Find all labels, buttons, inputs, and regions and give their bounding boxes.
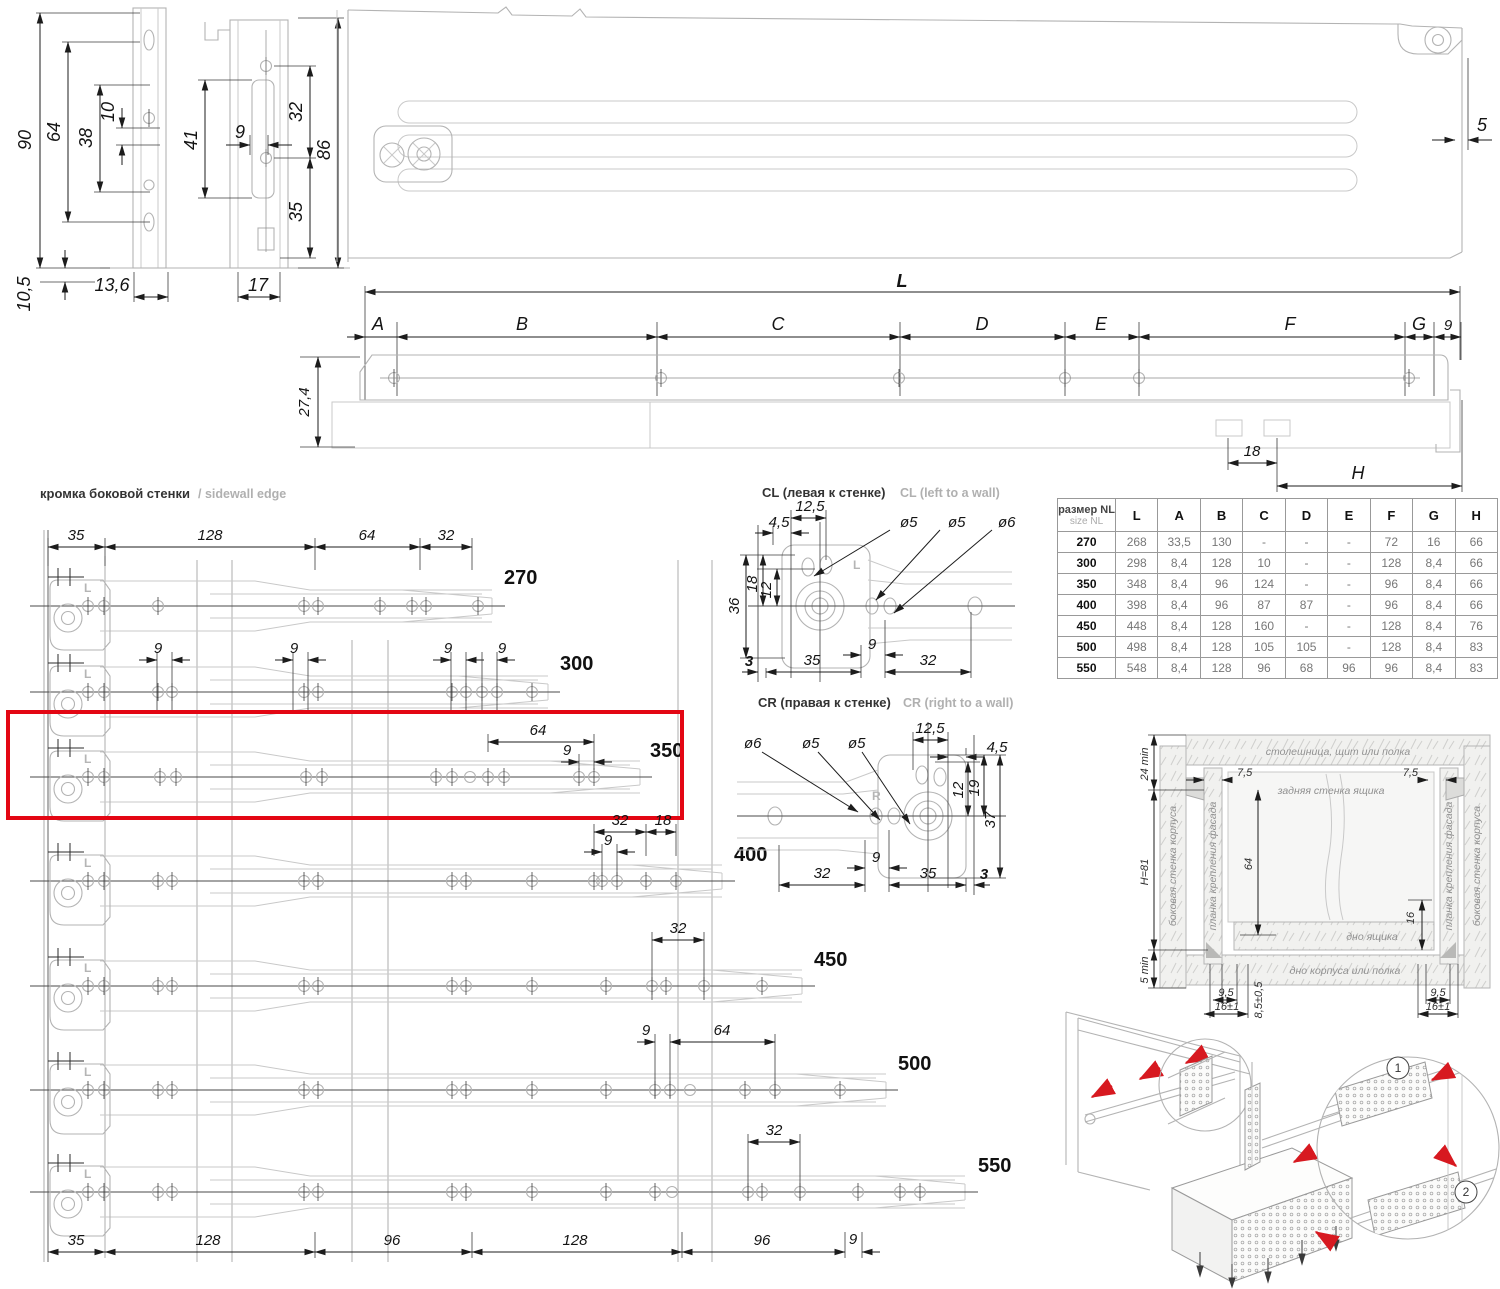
dim-9d: 9 [498,640,507,657]
dim-27-4: 27,4 [296,387,313,417]
cell: - [1328,616,1370,637]
dim-9-5-right: 9,5 [1430,987,1446,999]
dim-64: 64 [44,122,64,142]
dim-64: 64 [714,1022,731,1039]
size-label-270: 270 [504,567,537,589]
cell-size: 300 [1058,553,1116,574]
dim-64: 64 [530,722,547,739]
cell: 16 [1413,532,1455,553]
dim-8-5: 8,5±0,5 [1253,981,1265,1019]
slide-row-500: L 500 9 64 [30,1022,931,1134]
dim-18: 18 [1244,443,1261,460]
cell: 66 [1455,553,1498,574]
cell: 8,4 [1413,574,1455,595]
row-400-dims: 32 18 9 [584,812,676,876]
label-strip-left: планка крепления фасада [1207,801,1219,930]
cell: 8,4 [1158,616,1200,637]
bot-dim-96a: 96 [384,1232,401,1249]
cr-dim-19: 19 [966,779,983,796]
rail-mark: L [84,581,91,595]
cl-dim-3: 3 [745,653,754,670]
assembly-illustration: 1 2 [1066,1012,1499,1287]
dim-9: 9 [235,122,245,142]
seg-D: D [976,314,989,334]
row-500-dims: 9 64 [637,1022,775,1098]
technical-drawing-sheet: 90 64 38 10 41 9 32 35 86 10,5 13,6 17 5 [0,0,1500,1289]
seg-9: 9 [1444,317,1453,334]
cell: 96 [1200,574,1242,595]
cr-dim-3: 3 [980,866,989,883]
col-E: E [1328,499,1370,532]
cell: 96 [1370,595,1412,616]
cell: - [1285,532,1327,553]
cell: - [1328,595,1370,616]
table-row: 270 26833,5130---721666 [1058,532,1498,553]
cell: 8,4 [1413,637,1455,658]
bot-dim-96b: 96 [754,1232,771,1249]
bot-dim-9: 9 [849,1231,858,1248]
cell: 398 [1116,595,1158,616]
cell: - [1328,574,1370,595]
table-row: 350 3488,496124--968,466 [1058,574,1498,595]
dim-32: 32 [670,920,687,937]
table-row: 300 2988,412810--1288,466 [1058,553,1498,574]
size-spec-table: размер NL size NL L A B C D E F G H 270 … [1057,498,1498,679]
cell: 8,4 [1158,658,1200,679]
dim-7-5-right: 7,5 [1403,767,1419,779]
cell: 448 [1116,616,1158,637]
cell: 128 [1200,616,1242,637]
dim-24min: 24 min [1139,747,1151,781]
dim-L: L [897,271,908,291]
cell: - [1328,532,1370,553]
sidewall-bottom-dims: 35 128 96 128 96 9 [48,1231,880,1258]
cell: 96 [1328,658,1370,679]
dim-18: 18 [655,812,672,829]
col-F: F [1370,499,1412,532]
cell: 128 [1200,553,1242,574]
sidewall-section: кромка боковой стенки / sidewall edge 35… [8,486,1011,1262]
dim-10-5: 10,5 [14,276,34,312]
dim-32: 32 [766,1122,783,1139]
cell: 8,4 [1413,553,1455,574]
dim-13-6: 13,6 [94,275,130,295]
cell: 130 [1200,532,1242,553]
dim-9a: 9 [154,640,163,657]
cl-dim-12-5: 12,5 [795,498,825,515]
rail-mark: L [84,1167,91,1181]
drawer-side-panel: 5 [337,7,1492,262]
col-C: C [1243,499,1285,532]
dim-5min: 5 min [1139,957,1151,984]
slide-row-400: L 400 32 18 9 [30,812,767,925]
dim-9-5-left: 9,5 [1218,987,1234,999]
top-dim-32: 32 [438,527,455,544]
dim-64: 64 [1243,858,1255,870]
cr-dia5a: ø5 [802,735,820,752]
table-row: 500 4988,4128105105-1288,483 [1058,637,1498,658]
cr-dim-4-5: 4,5 [987,739,1009,756]
cr-title-en: CR (right to a wall) [903,696,1013,710]
cl-dim-36: 36 [726,597,743,614]
cell: 66 [1455,595,1498,616]
label-strip-right: планка крепления фасада [1443,801,1455,930]
dim-7-5-left: 7,5 [1237,767,1253,779]
table-header-size: размер NL size NL [1058,499,1116,532]
size-label-350: 350 [650,740,683,762]
cell: - [1285,616,1327,637]
cell: 268 [1116,532,1158,553]
table-header-row: размер NL size NL L A B C D E F G H [1058,499,1498,532]
row-350-dims: 64 9 [488,722,612,770]
top-dim-35: 35 [68,527,85,544]
dim-5: 5 [1477,115,1488,135]
bot-dim-128b: 128 [562,1232,588,1249]
seg-G: G [1412,314,1426,334]
dim-9: 9 [604,832,613,849]
label-countertop: столешница, щит или полка [1266,746,1411,758]
col-G: G [1413,499,1455,532]
cell: 498 [1116,637,1158,658]
dim-32: 32 [286,102,306,122]
col-L: L [1116,499,1158,532]
cell: 128 [1200,658,1242,679]
cell: 87 [1285,595,1327,616]
cr-dia6: ø6 [744,735,762,752]
cell: 8,4 [1158,553,1200,574]
cl-dim-12: 12 [758,581,775,598]
dim-H81: H=81 [1139,859,1151,886]
cell-size: 550 [1058,658,1116,679]
bot-dim-128a: 128 [195,1232,221,1249]
cell: 548 [1116,658,1158,679]
sidewall-top-dims: 35 128 64 32 [48,527,472,570]
cell: 128 [1370,637,1412,658]
cell-size: 270 [1058,532,1116,553]
cross-section-dimensions: 90 64 38 10 41 9 32 35 86 10,5 13,6 17 [14,13,344,312]
size-label-550: 550 [978,1155,1011,1177]
cl-dim-32: 32 [920,652,937,669]
col-A: A [1158,499,1200,532]
cr-dim-35: 35 [920,865,937,882]
cl-dim-35: 35 [804,652,821,669]
cell: 105 [1243,637,1285,658]
rail-side-view: L A B C D E F G 9 27,4 18 H [296,271,1462,492]
cell: 76 [1455,616,1498,637]
cell-size: 400 [1058,595,1116,616]
seg-C: C [772,314,786,334]
cl-dim-4-5: 4,5 [769,514,791,531]
size-label-300: 300 [560,653,593,675]
cell: 8,4 [1413,658,1455,679]
label-drawer-bottom: дно ящика [1346,931,1398,943]
cell: 87 [1243,595,1285,616]
cell-size: 500 [1058,637,1116,658]
cl-dim-9: 9 [868,636,877,653]
rail-mark: L [84,961,91,975]
slide-row-550: L 550 32 [30,1122,1011,1236]
label-case-bottom: дно корпуса или полка [1290,965,1401,977]
table-row: 450 4488,4128160--1288,476 [1058,616,1498,637]
cl-dia6: ø6 [998,514,1016,531]
cell: 66 [1455,574,1498,595]
table-row: 550 5488,4128966896968,483 [1058,658,1498,679]
slide-row-300: L 300 9 9 9 9 [30,640,593,736]
cell: 68 [1285,658,1327,679]
dim-16-1-left: 16±1 [1215,1001,1239,1013]
slide-row-350: L 350 64 9 [30,722,683,821]
cell: 298 [1116,553,1158,574]
sidewall-title-ru: кромка боковой стенки [40,486,190,501]
cell: 8,4 [1413,616,1455,637]
cell: 160 [1243,616,1285,637]
cl-mark: L [853,558,860,572]
dim-35: 35 [286,201,306,222]
col-H: H [1455,499,1498,532]
cell-size: 450 [1058,616,1116,637]
seg-E: E [1095,314,1108,334]
seg-B: B [516,314,528,334]
cell: 348 [1116,574,1158,595]
cell: 124 [1243,574,1285,595]
cr-dia5b: ø5 [848,735,866,752]
dim-17: 17 [248,275,269,295]
cell: 8,4 [1158,595,1200,616]
size-label-500: 500 [898,1053,931,1075]
cell: 128 [1370,616,1412,637]
left-slide-profile [1186,778,1204,800]
dim-9c: 9 [444,640,453,657]
cl-detail: CL (левая к стенке) CL (left to a wall) … [726,485,1016,682]
cell: - [1328,637,1370,658]
label-back-wall: задняя стенка ящика [1277,785,1385,797]
cr-detail: CR (правая к стенке) CR (right to a wall… [737,695,1013,895]
cr-dim-12-5: 12,5 [915,720,945,737]
cr-title-ru: CR (правая к стенке) [758,695,891,710]
cell: 128 [1370,553,1412,574]
cell: 96 [1370,574,1412,595]
table-header-size-en: size NL [1058,516,1115,527]
dim-9: 9 [642,1022,651,1039]
dim-9: 9 [563,742,572,759]
cell: 8,4 [1158,574,1200,595]
cell: - [1285,553,1327,574]
cell: 96 [1243,658,1285,679]
table-header-size-ru: размер NL [1058,504,1115,516]
right-slide-profile [1446,778,1464,800]
dim-10: 10 [98,102,118,122]
dim-38: 38 [76,128,96,148]
cell: 83 [1455,637,1498,658]
cell: - [1285,574,1327,595]
dim-H: H [1352,463,1366,483]
cell: 72 [1370,532,1412,553]
cell: 8,4 [1413,595,1455,616]
cell: 83 [1455,658,1498,679]
cl-dia5a: ø5 [900,514,918,531]
bot-dim-35: 35 [68,1232,85,1249]
size-label-400: 400 [734,844,767,866]
cell: - [1328,553,1370,574]
size-label-450: 450 [814,949,847,971]
cl-dia5b: ø5 [948,514,966,531]
dim-32: 32 [612,812,629,829]
cross-section-profiles [100,8,350,268]
dim-41: 41 [181,130,201,150]
dim-16: 16 [1405,911,1417,924]
step-1-badge: 1 [1395,1061,1402,1075]
dim-86: 86 [314,139,334,160]
seg-F: F [1285,314,1297,334]
cl-title-en: CL (left to a wall) [900,486,1000,500]
cell: 96 [1370,658,1412,679]
cr-dim-12: 12 [950,781,967,798]
cell-size: 350 [1058,574,1116,595]
dim-16-1-right: 16±1 [1426,1001,1450,1013]
drawer-bottom-panel [1234,922,1434,950]
cell: 128 [1200,637,1242,658]
dim-9b: 9 [290,640,299,657]
cell: 105 [1285,637,1327,658]
rail-mark: L [84,667,91,681]
sidewall-title-en: / sidewall edge [198,487,286,501]
cell: - [1243,532,1285,553]
cell: 8,4 [1158,637,1200,658]
cr-dim-37: 37 [982,811,999,828]
rail-mark: L [84,856,91,870]
cr-mark: R [872,789,881,803]
step-2-badge: 2 [1463,1185,1470,1199]
cell: 66 [1455,532,1498,553]
cell: 33,5 [1158,532,1200,553]
label-side-wall-right: боковая стенка корпуса [1471,806,1483,926]
slide-row-450: L 450 32 [30,920,847,1030]
slide-row-270: L 270 [30,567,537,650]
cr-dim-32: 32 [814,865,831,882]
col-B: B [1200,499,1242,532]
cell: 96 [1200,595,1242,616]
rail-mark: L [84,1065,91,1079]
label-side-wall-left: боковая стенка корпуса [1167,806,1179,926]
rail-mark: L [84,752,91,766]
installation-section: столешница, щит или полка задняя стенка … [1139,735,1490,1018]
cell: 10 [1243,553,1285,574]
row-550-dims: 32 [748,1122,800,1200]
seg-A: A [371,314,384,334]
table-row: 400 3988,4968787-968,466 [1058,595,1498,616]
top-dim-64: 64 [359,527,376,544]
col-D: D [1285,499,1327,532]
dim-90: 90 [15,130,35,150]
cr-dim-9: 9 [872,849,881,866]
top-dim-128: 128 [197,527,223,544]
